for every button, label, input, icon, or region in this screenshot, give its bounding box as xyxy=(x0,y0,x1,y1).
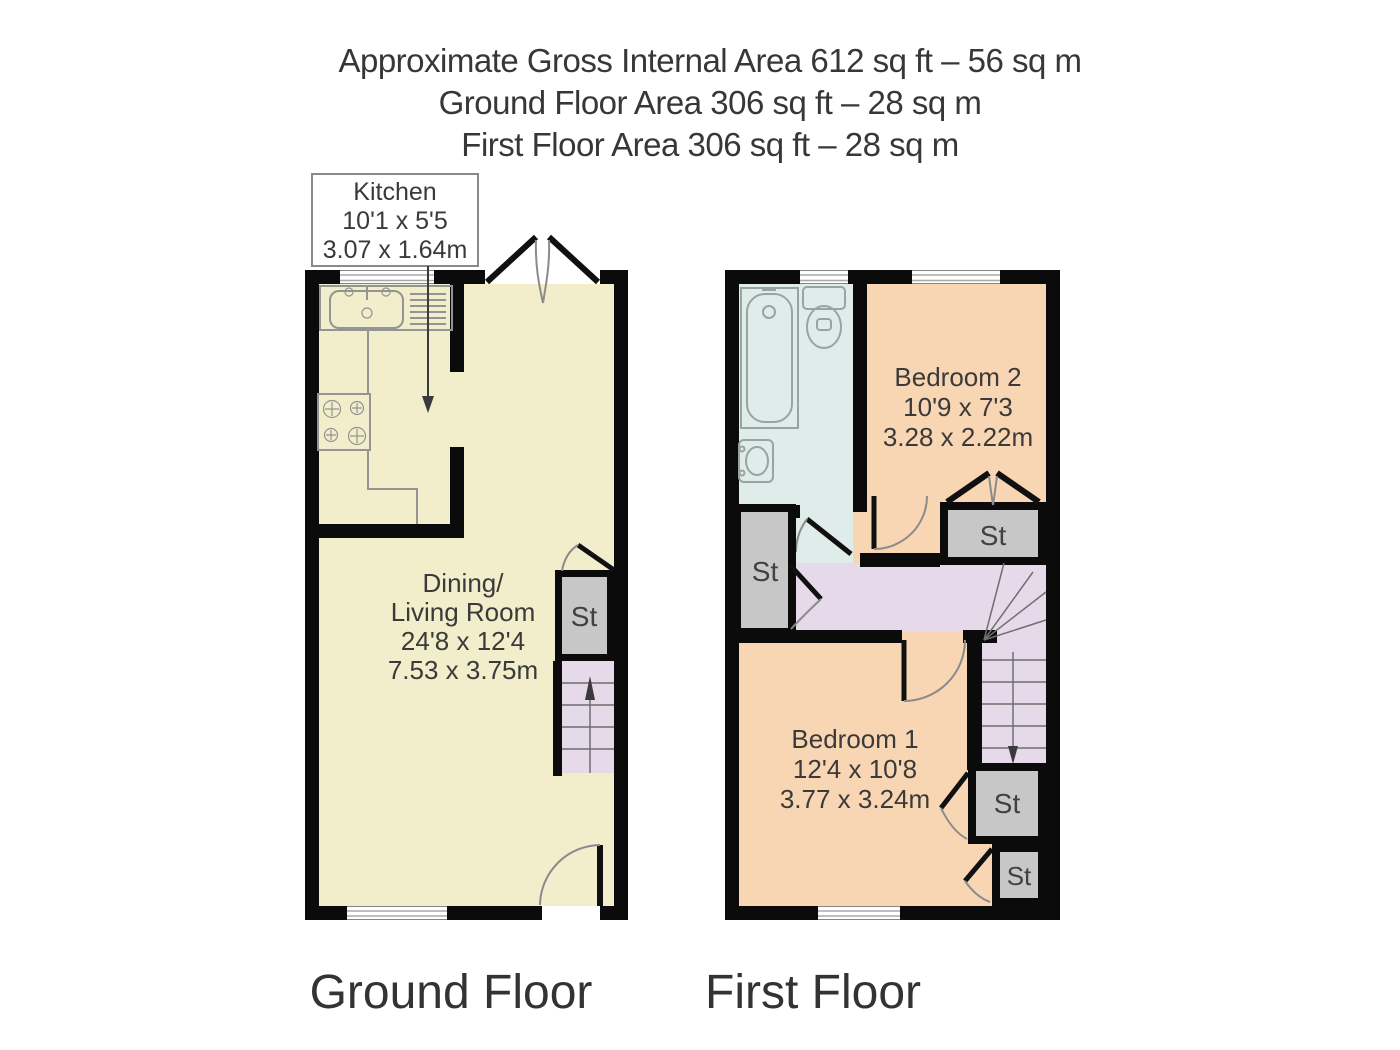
ground-floor-caption: Ground Floor xyxy=(310,966,593,1019)
bedroom1-imperial: 12'4 x 10'8 xyxy=(793,754,917,784)
living-metric: 7.53 x 3.75m xyxy=(388,655,538,685)
living-name-2: Living Room xyxy=(391,597,536,627)
header-line-3: First Floor Area 306 sq ft – 28 sq m xyxy=(461,126,958,163)
bedroom2-metric: 3.28 x 2.22m xyxy=(883,422,1033,452)
header-line-2: Ground Floor Area 306 sq ft – 28 sq m xyxy=(439,84,982,121)
floorplan-image: Approximate Gross Internal Area 612 sq f… xyxy=(0,0,1400,1050)
bedroom1-label: Bedroom 1 12'4 x 10'8 3.77 x 3.24m xyxy=(780,724,930,814)
header-text: Approximate Gross Internal Area 612 sq f… xyxy=(338,42,1081,163)
bedroom2-name: Bedroom 2 xyxy=(894,362,1021,392)
gf-staircase xyxy=(553,661,614,776)
living-name-1: Dining/ xyxy=(423,568,505,598)
bedroom1-metric: 3.77 x 3.24m xyxy=(780,784,930,814)
ff-storage-topright-label: St xyxy=(980,520,1007,551)
header-line-1: Approximate Gross Internal Area 612 sq f… xyxy=(338,42,1081,79)
gf-top-window xyxy=(340,271,434,284)
first-floor-plan: St St xyxy=(705,270,1060,1019)
ff-storage-left-label: St xyxy=(752,556,779,587)
first-floor-caption: First Floor xyxy=(705,966,921,1019)
ff-top-window-bathroom xyxy=(800,271,848,284)
ff-storage-botright-label: St xyxy=(1007,861,1032,891)
bedroom1-name: Bedroom 1 xyxy=(791,724,918,754)
ground-floor-plan: Kitchen 10'1 x 5'5 3.07 x 1.64m Dining/ … xyxy=(305,174,628,1019)
living-imperial: 24'8 x 12'4 xyxy=(401,626,525,656)
gf-storage-label: St xyxy=(571,601,598,632)
floorplan-page: Approximate Gross Internal Area 612 sq f… xyxy=(0,0,1400,1050)
ff-storage-midright-label: St xyxy=(994,788,1021,819)
kitchen-name: Kitchen xyxy=(353,178,436,206)
kitchen-metric: 3.07 x 1.64m xyxy=(323,236,468,264)
ff-bottom-window-bedroom1 xyxy=(818,907,900,920)
bedroom2-imperial: 10'9 x 7'3 xyxy=(903,392,1013,422)
bedroom2-label: Bedroom 2 10'9 x 7'3 3.28 x 2.22m xyxy=(883,362,1033,452)
gf-bottom-window xyxy=(347,907,447,920)
kitchen-imperial: 10'1 x 5'5 xyxy=(342,207,447,235)
ff-top-window-bedroom2 xyxy=(912,271,1000,284)
